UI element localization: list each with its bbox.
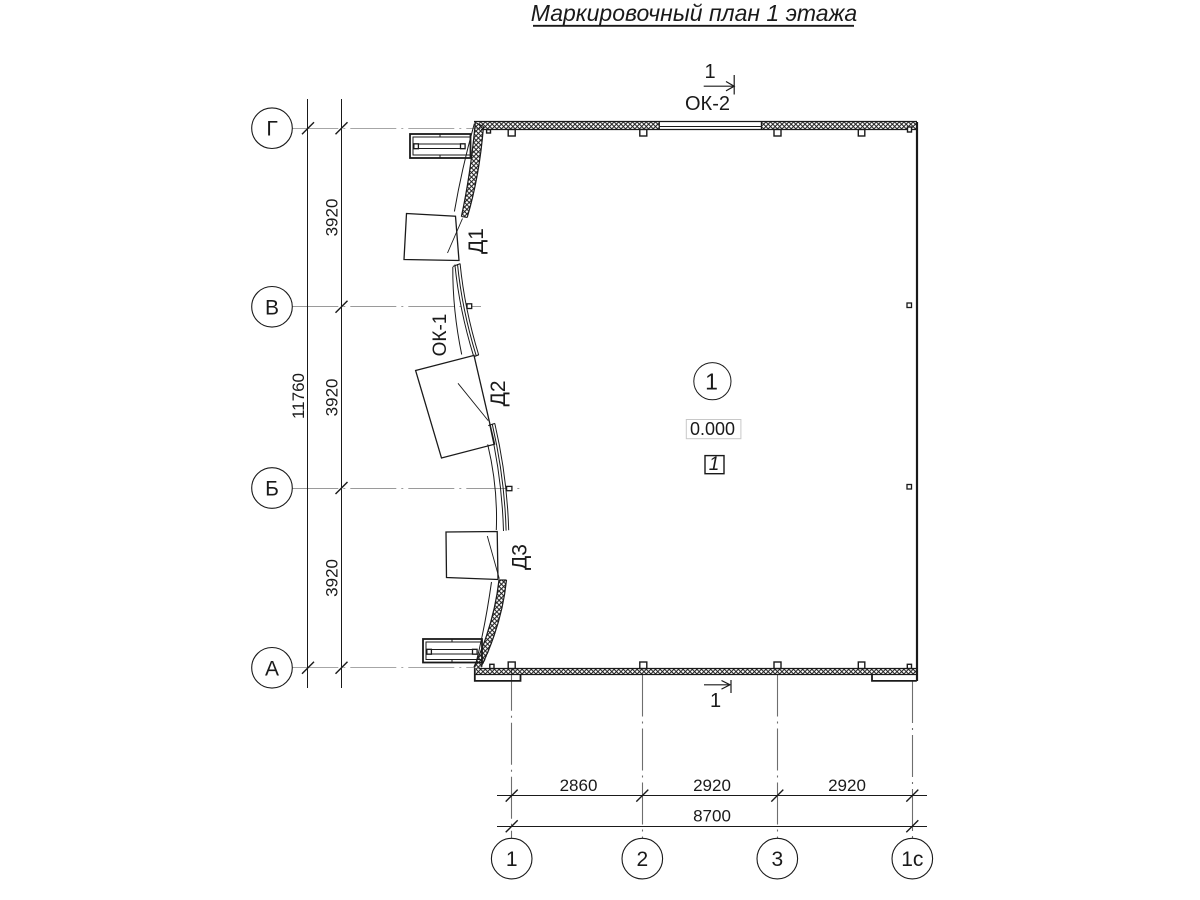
svg-text:ОК-2: ОК-2 xyxy=(685,93,730,115)
svg-text:1: 1 xyxy=(506,848,518,871)
svg-text:1: 1 xyxy=(705,369,718,395)
svg-text:Д1: Д1 xyxy=(465,228,488,254)
svg-text:2: 2 xyxy=(636,848,648,871)
svg-text:Д3: Д3 xyxy=(509,544,532,570)
svg-text:2920: 2920 xyxy=(693,776,731,795)
svg-text:Б: Б xyxy=(265,478,279,501)
svg-text:8700: 8700 xyxy=(693,807,731,826)
svg-text:3920: 3920 xyxy=(323,199,342,237)
svg-text:1: 1 xyxy=(709,454,720,475)
svg-text:Д2: Д2 xyxy=(487,380,510,406)
svg-text:1с: 1с xyxy=(901,848,923,871)
svg-text:А: А xyxy=(265,657,279,680)
svg-text:В: В xyxy=(265,296,279,319)
svg-text:1: 1 xyxy=(704,61,715,83)
svg-text:2920: 2920 xyxy=(828,776,866,795)
svg-text:2860: 2860 xyxy=(560,776,598,795)
svg-text:3920: 3920 xyxy=(323,559,342,597)
svg-text:1: 1 xyxy=(710,690,721,712)
svg-text:3: 3 xyxy=(771,848,783,871)
svg-text:Маркировочный план 1 этажа: Маркировочный план 1 этажа xyxy=(531,0,857,26)
svg-text:11760: 11760 xyxy=(289,373,308,419)
svg-text:3920: 3920 xyxy=(323,378,342,416)
svg-text:Г: Г xyxy=(266,118,277,141)
svg-text:ОК-1: ОК-1 xyxy=(430,314,451,357)
svg-text:0.000: 0.000 xyxy=(690,419,735,439)
